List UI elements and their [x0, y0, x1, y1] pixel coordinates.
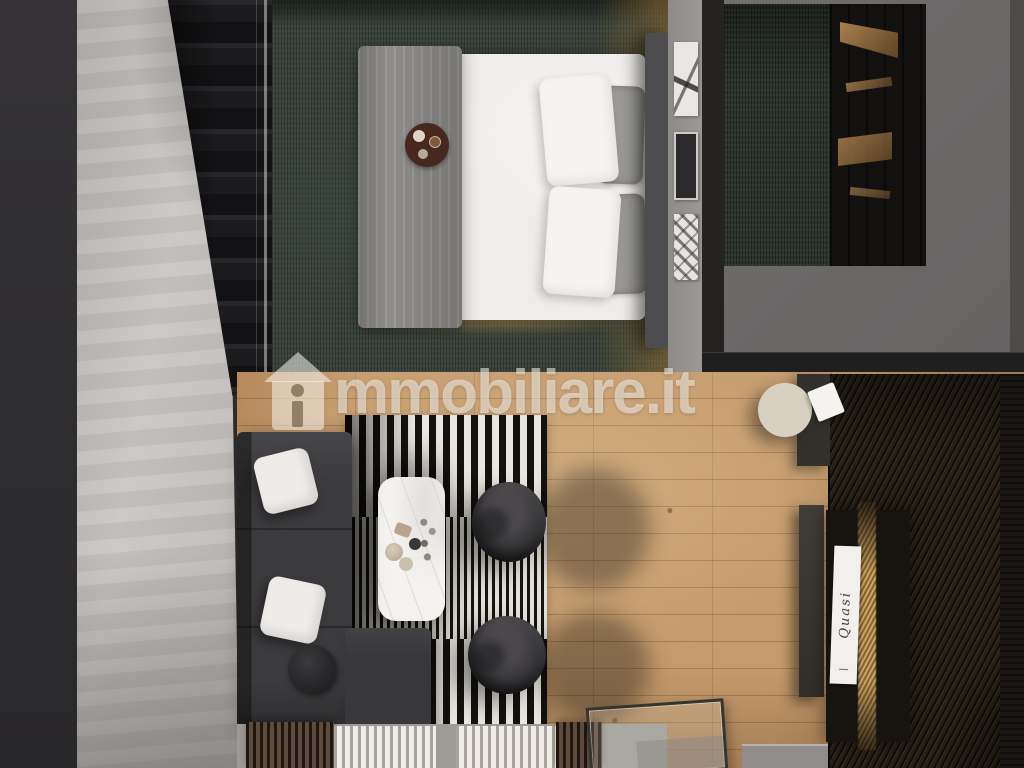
- cup: [413, 130, 425, 142]
- shelf-light: [838, 132, 892, 166]
- wardrobe-room: [702, 0, 1024, 380]
- lower-counter: [742, 744, 828, 768]
- white-pillow: [538, 73, 619, 187]
- white-pillow: [542, 186, 621, 299]
- armchair: [472, 482, 546, 562]
- glass-table-reflection: [636, 736, 725, 768]
- sheer-curtain: [334, 726, 436, 768]
- picture-frame: [674, 214, 698, 280]
- armchair: [468, 616, 546, 694]
- wardrobe-carpet: [724, 4, 830, 266]
- plate: [418, 149, 428, 159]
- backlit-panel: Quasi: [826, 510, 910, 742]
- wardrobe-shelves: [830, 4, 926, 266]
- coffee-table: [378, 477, 445, 621]
- wall-sign-subline: [839, 669, 848, 670]
- armchair-seat: [476, 508, 507, 540]
- led-glow-strip: [858, 502, 876, 750]
- round-cushion: [288, 645, 336, 693]
- wall-edge: [1000, 374, 1024, 768]
- picture-frame: [674, 132, 698, 200]
- stair-railing: [264, 0, 267, 386]
- wall-sign-text: Quasi: [837, 591, 854, 639]
- decor-flowers: [410, 514, 441, 569]
- shelf-light: [846, 77, 893, 92]
- glass-table: [586, 698, 729, 768]
- bedroom-side-wall: [668, 0, 702, 372]
- cup: [429, 136, 441, 148]
- wardrobe-room-edge: [1010, 0, 1024, 352]
- double-bed: [362, 54, 646, 320]
- sheer-curtain: [456, 726, 556, 768]
- sofa-chaise: [345, 628, 431, 728]
- chair-shadow: [538, 468, 650, 590]
- sofa-pillow: [258, 575, 327, 646]
- round-stool: [758, 383, 812, 437]
- wall-sign: Quasi: [830, 546, 862, 685]
- apartment-top-view-render: Quasi mmobiliare.it: [0, 0, 1024, 768]
- shelf-light: [840, 22, 898, 58]
- decor-box: [393, 522, 412, 539]
- picture-frame: [674, 42, 698, 116]
- bed-blanket: [358, 46, 462, 328]
- bed-headboard: [645, 33, 670, 348]
- wardrobe-opening: [724, 4, 926, 266]
- shelf-light: [850, 187, 891, 199]
- left-dark-wall-strip: [0, 0, 77, 768]
- armchair-seat: [473, 641, 506, 672]
- breakfast-tray: [405, 123, 449, 167]
- tv-unit: [799, 505, 824, 697]
- glass-railing-reflection: [256, 0, 257, 380]
- brown-curtain: [246, 722, 334, 768]
